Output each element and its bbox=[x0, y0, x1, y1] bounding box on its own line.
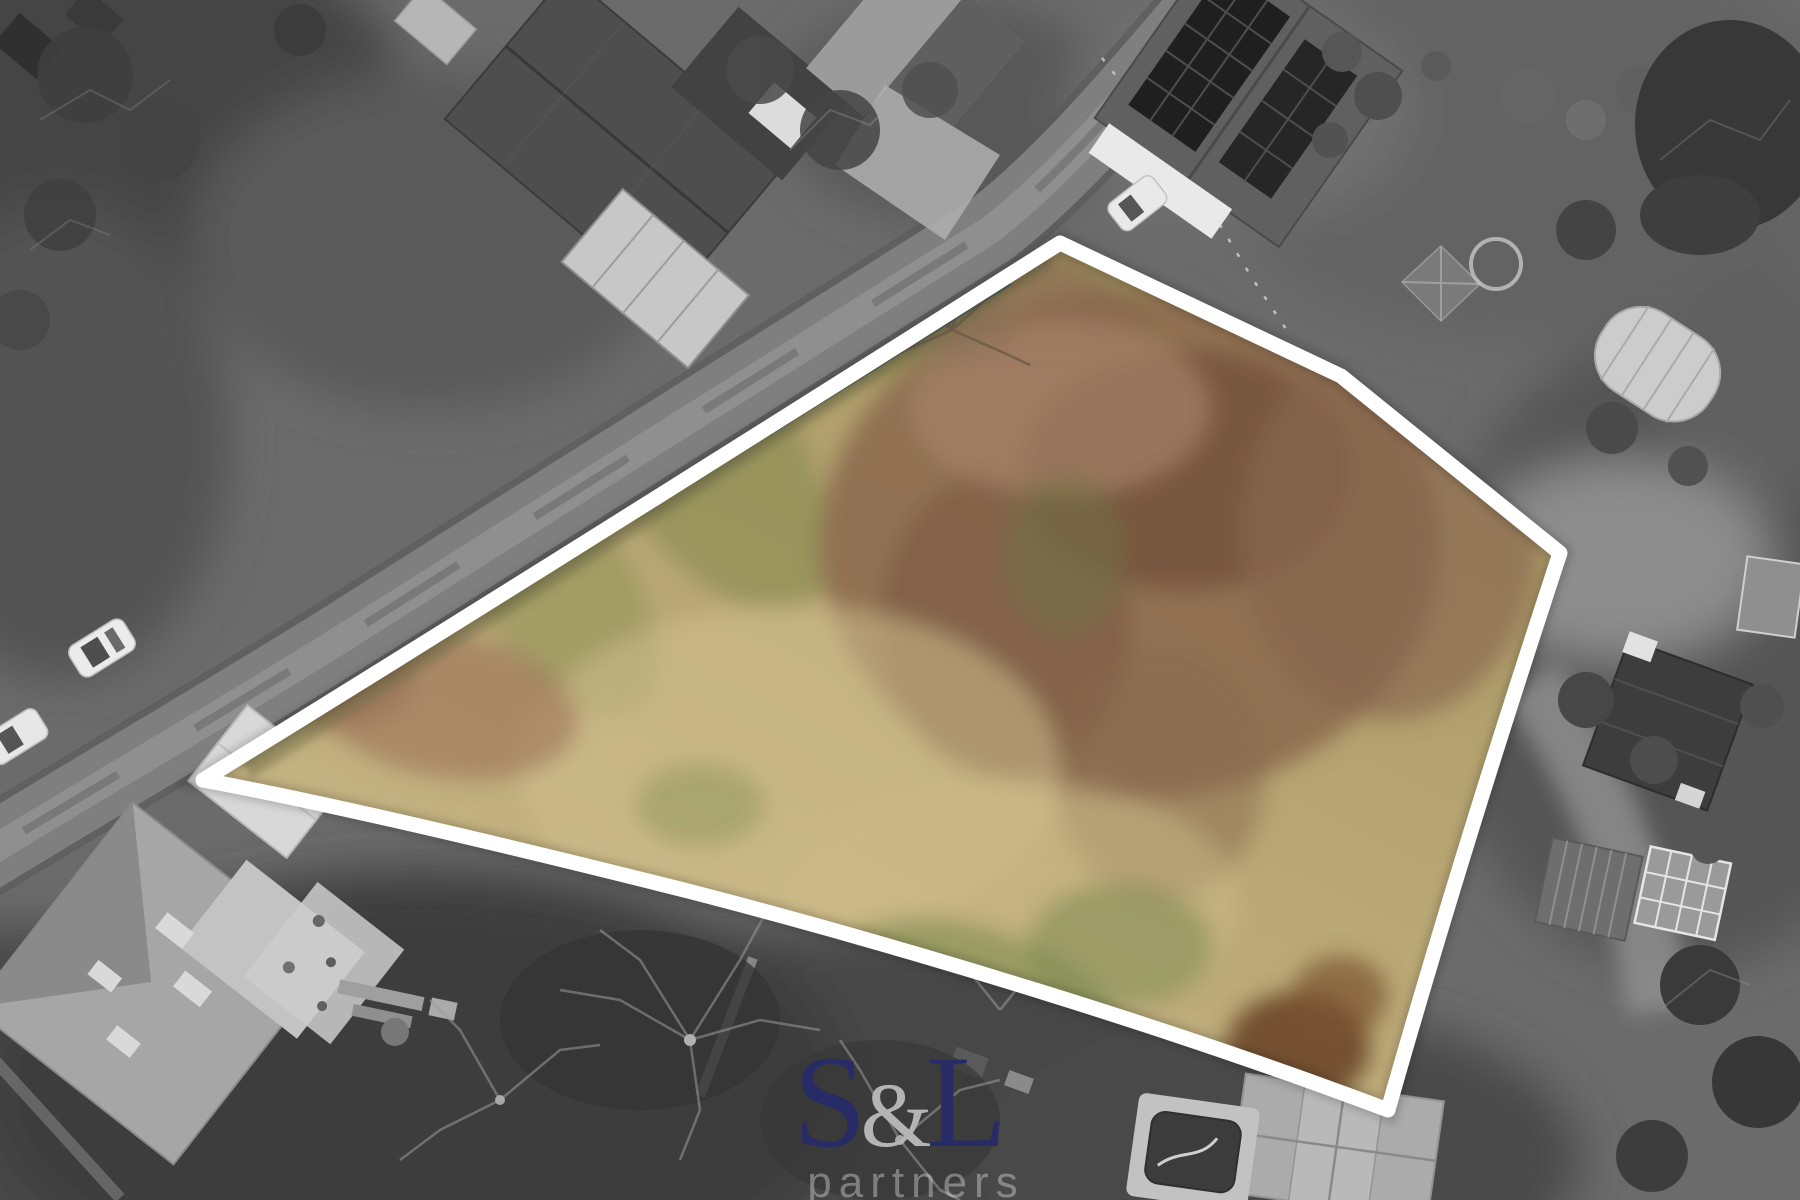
swimming-pool bbox=[1125, 1092, 1260, 1200]
watermark-ampersand: & bbox=[861, 1064, 933, 1166]
aerial-photo-canvas: S & L partners bbox=[0, 0, 1800, 1200]
watermark-letter-l: L bbox=[926, 1028, 1007, 1175]
watermark-subtitle: partners bbox=[807, 1158, 1024, 1200]
green-roof-shed bbox=[1737, 556, 1800, 637]
corrugated-shed bbox=[1535, 838, 1643, 941]
watermark-letter-s: S bbox=[793, 1028, 866, 1175]
aerial-photo: S & L partners bbox=[0, 0, 1800, 1200]
